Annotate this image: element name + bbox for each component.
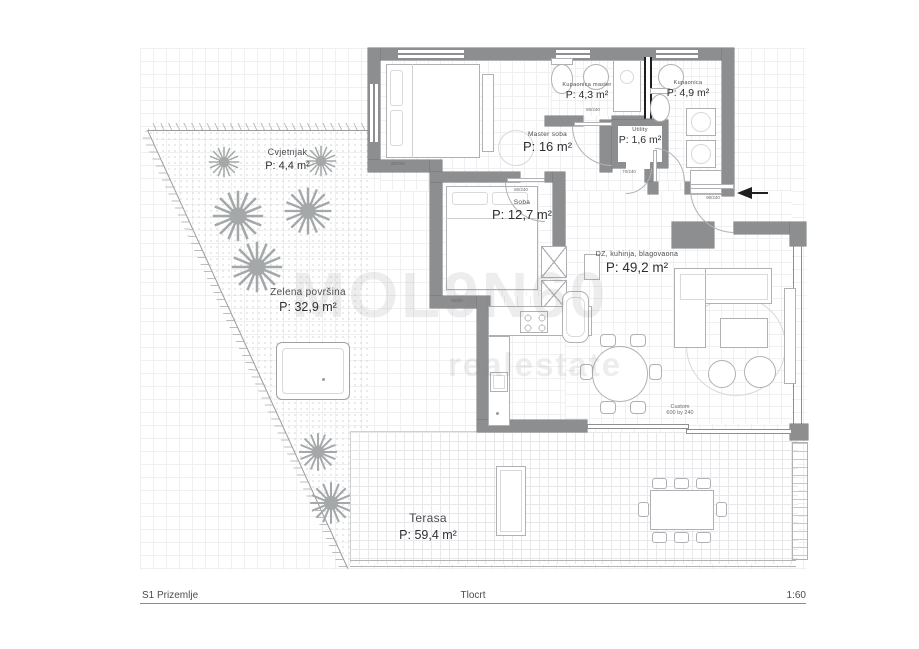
window-master-bedroom-side bbox=[370, 84, 378, 142]
pouf bbox=[744, 356, 776, 388]
pillow bbox=[390, 110, 403, 146]
door-dimension-tag: 70/240 bbox=[616, 170, 642, 175]
room-name: Master soba bbox=[500, 131, 595, 139]
room-label-kupaonica-master: Kupaonica master P: 4,3 m² bbox=[543, 82, 631, 103]
tree-icon bbox=[210, 188, 266, 244]
room-area: P: 4,4 m² bbox=[245, 159, 330, 173]
room-label-cvjetnjak: Cvjetnjak P: 4,4 m² bbox=[245, 147, 330, 173]
bedroom-bench bbox=[482, 74, 494, 152]
room-area: P: 4,3 m² bbox=[543, 89, 631, 103]
wall-right-corner-upper bbox=[790, 222, 806, 246]
title-block-divider bbox=[140, 603, 806, 604]
tree-icon bbox=[297, 431, 339, 473]
outdoor-chair bbox=[652, 532, 667, 543]
room-area: P: 12,7 m² bbox=[478, 207, 566, 224]
door-dimension-tag: 90/240 bbox=[700, 196, 726, 201]
room-name: DZ, kuhinja, blagovaona bbox=[578, 250, 696, 259]
tree-icon bbox=[308, 480, 354, 526]
entrance-arrow-tail bbox=[752, 192, 768, 194]
planter-drain-dot bbox=[322, 378, 325, 381]
room-name: Utility bbox=[614, 127, 666, 134]
sofa-seat-line bbox=[680, 274, 768, 300]
window-master-bath bbox=[556, 50, 590, 58]
dryer-drum-icon bbox=[691, 144, 711, 164]
terrace-planter-inner bbox=[500, 470, 522, 532]
wall-bath-bottom-a bbox=[648, 182, 658, 194]
room-label-kupaonica: Kupaonica P: 4,9 m² bbox=[648, 80, 728, 101]
outdoor-chair bbox=[674, 478, 689, 489]
room-label-master-soba: Master soba P: 16 m² bbox=[500, 131, 595, 156]
terrace-floor bbox=[350, 432, 798, 564]
room-name: Zelena površina bbox=[252, 286, 364, 299]
floor-plan: Custom 600 by 240 bbox=[0, 0, 919, 649]
dining-chair bbox=[630, 334, 646, 347]
outdoor-chair bbox=[696, 532, 711, 543]
outdoor-table bbox=[650, 490, 714, 530]
wall-right-upper bbox=[722, 48, 734, 196]
garden-planter-inner bbox=[282, 348, 344, 394]
entrance-arrow-icon bbox=[737, 187, 752, 199]
pillow bbox=[390, 70, 403, 106]
washer-drum-icon bbox=[691, 112, 711, 132]
outdoor-chair bbox=[696, 478, 711, 489]
plot-boundary-hatch-top bbox=[148, 123, 369, 131]
drawing-title: Tlocrt bbox=[438, 590, 508, 601]
door-dimension-tag: 80/240 bbox=[508, 188, 534, 193]
room-name: Kupaonica bbox=[648, 80, 728, 87]
custom-furniture-label: Custom 600 by 240 bbox=[642, 404, 718, 416]
room-area: P: 1,6 m² bbox=[614, 134, 666, 148]
dining-chair bbox=[649, 364, 662, 380]
outdoor-chair bbox=[716, 502, 727, 517]
custom-size-text: 600 by 240 bbox=[642, 410, 718, 416]
sliding-door-panel-2 bbox=[686, 429, 792, 434]
room-area: P: 32,9 m² bbox=[252, 299, 364, 315]
outdoor-chair bbox=[652, 478, 667, 489]
sheet-label: S1 Prizemlje bbox=[142, 590, 198, 601]
terrace-edge-left bbox=[350, 432, 351, 562]
room-area: P: 59,4 m² bbox=[383, 527, 473, 543]
scale-label: 1:60 bbox=[770, 590, 806, 601]
room-area: P: 49,2 m² bbox=[578, 259, 696, 277]
kitchen-knob-dot bbox=[496, 412, 499, 415]
tv-bench bbox=[784, 288, 796, 384]
room-label-soba: Soba P: 12,7 m² bbox=[478, 199, 566, 224]
bed-fold-line bbox=[412, 64, 413, 158]
room-name: Soba bbox=[478, 199, 566, 207]
dining-chair bbox=[630, 401, 646, 414]
outdoor-chair bbox=[638, 502, 649, 517]
room-label-terasa: Terasa P: 59,4 m² bbox=[383, 511, 473, 543]
room-area: P: 4,9 m² bbox=[648, 87, 728, 101]
room-label-utility: Utility P: 1,6 m² bbox=[614, 127, 666, 148]
sliding-door-panel-1 bbox=[587, 424, 689, 429]
terrace-side-steps bbox=[792, 442, 808, 560]
tree-icon bbox=[282, 185, 334, 237]
window-master-bedroom bbox=[398, 50, 464, 58]
room-label-dnevni-boravak: DZ, kuhinja, blagovaona P: 49,2 m² bbox=[578, 250, 696, 277]
door-dimension-tag: 80/240 bbox=[580, 108, 606, 113]
window-bathroom bbox=[656, 50, 698, 58]
door-dimension-tag: 80/240 bbox=[385, 162, 411, 167]
coffee-table bbox=[720, 318, 768, 348]
room-label-zelena-povrsina: Zelena površina P: 32,9 m² bbox=[252, 286, 364, 315]
room-name: Kupaonica master bbox=[543, 82, 631, 89]
pouf bbox=[708, 360, 736, 388]
room-name: Cvjetnjak bbox=[245, 147, 330, 159]
watermark-subtitle: realestate bbox=[448, 346, 622, 384]
room-name: Terasa bbox=[383, 511, 473, 527]
terrace-edge-top-left bbox=[350, 431, 478, 432]
column-kitchen bbox=[672, 222, 714, 248]
outdoor-chair bbox=[674, 532, 689, 543]
room-area: P: 16 m² bbox=[500, 139, 595, 156]
tree-icon bbox=[207, 145, 241, 179]
terrace-railing-bottom bbox=[350, 560, 796, 567]
dining-chair bbox=[600, 401, 616, 414]
wall-right-corner-lower bbox=[790, 424, 808, 440]
